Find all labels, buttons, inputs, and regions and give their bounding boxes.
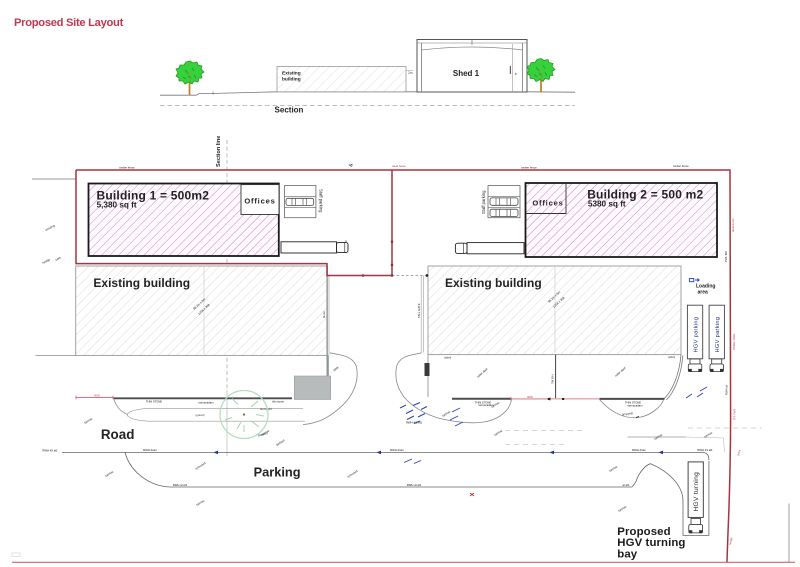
svg-text:7M OH: 7M OH	[551, 374, 555, 384]
svg-text:removed: removed	[194, 461, 206, 471]
svg-text:kerbed: kerbed	[275, 438, 285, 447]
svg-text:kerb: kerb	[55, 255, 62, 261]
svg-text:HGV turning: HGV turning	[693, 472, 700, 512]
svg-text:RWH 43 af1: RWH 43 af1	[697, 448, 713, 452]
svg-text:tarmac: tarmac	[83, 416, 93, 425]
svg-text:RWH 45 af1: RWH 45 af1	[42, 448, 58, 452]
svg-text:removed: removed	[346, 469, 358, 479]
svg-text:a: a	[515, 72, 517, 76]
svg-text:tarmac: tarmac	[441, 409, 451, 418]
svg-text:lay-by af1: lay-by af1	[260, 407, 272, 411]
svg-text:Existing building: Existing building	[93, 276, 190, 290]
svg-text:Proposed Site Layout: Proposed Site Layout	[14, 17, 124, 29]
svg-text:RWH drain: RWH drain	[390, 448, 404, 452]
svg-text:timber fence: timber fence	[673, 164, 689, 168]
svg-text:tarmac: tarmac	[493, 428, 503, 437]
svg-text:TALL GATE: TALL GATE	[417, 303, 421, 318]
svg-text:Road: Road	[101, 427, 134, 442]
svg-text:tarmac: tarmac	[653, 432, 663, 441]
svg-text:tarmacadam: tarmacadam	[628, 403, 644, 407]
svg-text:timber fence: timber fence	[521, 166, 537, 170]
svg-text:(label): (label)	[444, 356, 451, 360]
svg-text:tarmac: tarmac	[490, 400, 500, 409]
svg-text:Existing building: Existing building	[445, 276, 542, 290]
svg-text:Section line: Section line	[216, 136, 222, 167]
svg-text:5380 sq ft: 5380 sq ft	[588, 200, 626, 209]
svg-text:9000: 9000	[527, 395, 533, 399]
svg-text:Existing: Existing	[282, 71, 301, 77]
svg-text:timber fence: timber fence	[119, 166, 135, 170]
svg-text:HGV turning: HGV turning	[617, 537, 685, 549]
svg-text:hedge: hedge	[42, 257, 52, 265]
svg-text:steel fence: steel fence	[731, 218, 735, 232]
svg-text:RWH at af1: RWH at af1	[407, 483, 422, 487]
svg-text:hedge: hedge	[728, 536, 733, 545]
svg-text:roller door: roller door	[476, 367, 489, 379]
svg-text:existing: existing	[45, 223, 56, 231]
svg-text:fence: fence	[322, 311, 326, 318]
svg-text:&: &	[348, 162, 355, 167]
svg-text:2m: 2m	[408, 71, 413, 75]
svg-text:PWL 9M: PWL 9M	[724, 251, 728, 262]
svg-text:Offices: Offices	[244, 196, 275, 205]
svg-text:Staff parking: Staff parking	[481, 190, 486, 214]
svg-text:roller door: roller door	[614, 366, 627, 378]
svg-text:tarmac: tarmac	[617, 504, 627, 513]
svg-text:at af1: at af1	[623, 483, 630, 487]
svg-text:RWH af: RWH af	[725, 385, 729, 395]
svg-text:area: area	[698, 289, 709, 295]
svg-text:tarmac: tarmac	[104, 469, 114, 478]
svg-text:THIN STONE: THIN STONE	[146, 400, 162, 404]
svg-text:building: building	[282, 77, 301, 83]
svg-text:tarmac: tarmac	[195, 498, 205, 507]
svg-text:tarmac: tarmac	[608, 464, 618, 473]
svg-text:gate: gate	[332, 365, 339, 372]
svg-text:Shed 1: Shed 1	[453, 69, 480, 78]
svg-text:ITS 7WS: ITS 7WS	[733, 409, 737, 420]
svg-text:9000: 9000	[94, 393, 100, 397]
svg-text:STEEL WALL: STEEL WALL	[732, 333, 736, 350]
svg-text:9.6m: 9.6m	[736, 449, 742, 457]
svg-text:Staff parking: Staff parking	[318, 189, 323, 213]
svg-text:RWH drain: RWH drain	[632, 448, 646, 452]
svg-text:(label): (label)	[668, 355, 675, 359]
svg-text:(gravel): (gravel)	[195, 413, 204, 417]
svg-text:HGV parking: HGV parking	[693, 317, 699, 353]
svg-text:Section: Section	[275, 106, 304, 115]
svg-text:steel fence: steel fence	[392, 164, 406, 168]
svg-text:RWH drain: RWH drain	[143, 448, 157, 452]
svg-text:bay: bay	[617, 548, 637, 560]
svg-text:HGV parking: HGV parking	[715, 317, 721, 353]
svg-text:Parking: Parking	[254, 465, 301, 480]
svg-text:5,380 sq ft: 5,380 sq ft	[97, 201, 137, 210]
svg-text:(dropped): (dropped)	[622, 411, 634, 417]
svg-text:tarmacadam: tarmacadam	[199, 401, 215, 405]
svg-text:thin stone: thin stone	[272, 400, 284, 404]
svg-text:RWH at af1: RWH at af1	[173, 483, 188, 487]
svg-text:Offices: Offices	[532, 198, 563, 207]
